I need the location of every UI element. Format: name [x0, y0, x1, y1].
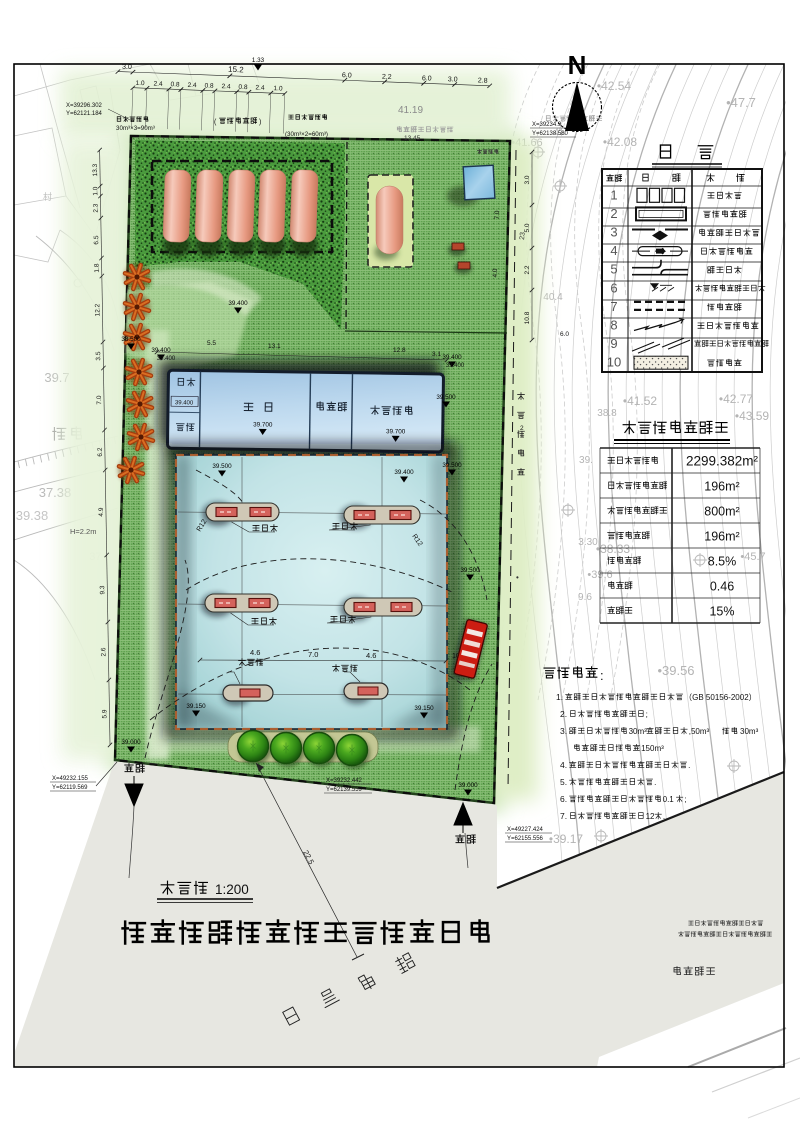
svg-text:9: 9 — [610, 336, 617, 351]
svg-text:6.0: 6.0 — [560, 331, 569, 338]
svg-text:2.2: 2.2 — [524, 265, 531, 274]
svg-text:5.: 5. — [560, 777, 567, 787]
svg-text:2.: 2. — [560, 709, 567, 719]
svg-text:7: 7 — [610, 299, 617, 314]
svg-text:38.8: 38.8 — [597, 408, 617, 419]
svg-text:3.: 3. — [560, 726, 567, 736]
svg-text:39.150: 39.150 — [414, 705, 434, 712]
svg-text:39.500: 39.500 — [442, 462, 462, 469]
svg-text:13.45: 13.45 — [404, 135, 421, 142]
svg-text:39.500: 39.500 — [460, 567, 480, 574]
svg-text:X=39234.9: X=39234.9 — [532, 122, 562, 128]
svg-text:3.0: 3.0 — [524, 175, 531, 184]
svg-text:.: . — [654, 778, 656, 787]
svg-text:•45.7: •45.7 — [740, 551, 765, 563]
svg-text:4.6: 4.6 — [250, 648, 260, 657]
svg-text:1.33: 1.33 — [252, 57, 265, 64]
svg-text:1.8: 1.8 — [94, 263, 101, 273]
svg-text:•41.52: •41.52 — [623, 394, 658, 408]
svg-text:N: N — [568, 50, 587, 80]
svg-text:2.8: 2.8 — [478, 77, 488, 84]
svg-text:0.8: 0.8 — [170, 81, 180, 88]
svg-text:3.1: 3.1 — [432, 351, 441, 358]
svg-text:41.19: 41.19 — [398, 105, 423, 116]
svg-text:39.400: 39.400 — [175, 400, 194, 406]
svg-text:2.4: 2.4 — [187, 82, 197, 89]
svg-text:7.0: 7.0 — [308, 650, 318, 659]
svg-text:30m³: 30m³ — [629, 727, 648, 736]
svg-text:2.4: 2.4 — [221, 83, 231, 90]
svg-text:30m³: 30m³ — [740, 727, 759, 736]
svg-text:5.9: 5.9 — [101, 709, 108, 719]
svg-text:•42.54: •42.54 — [597, 79, 632, 93]
svg-text:•39.56: •39.56 — [657, 663, 694, 678]
svg-text:10.8: 10.8 — [524, 311, 531, 324]
svg-text:X=49227.424: X=49227.424 — [507, 827, 544, 833]
svg-text:X=49232.155: X=49232.155 — [52, 776, 89, 782]
svg-text:196m²: 196m² — [704, 480, 739, 494]
svg-text:•39.17: •39.17 — [549, 832, 584, 846]
svg-text:39.38: 39.38 — [16, 508, 49, 523]
svg-text:Y=62139.559: Y=62139.559 — [326, 787, 363, 793]
svg-text:3: 3 — [610, 225, 617, 240]
svg-text:30m³×3=90m³: 30m³×3=90m³ — [116, 125, 155, 132]
svg-text:12: 12 — [646, 812, 655, 821]
svg-text:•: • — [516, 573, 519, 582]
svg-text:39.700: 39.700 — [253, 421, 273, 428]
svg-text:•43.59: •43.59 — [735, 409, 770, 423]
svg-text::: : — [600, 668, 604, 683]
svg-text:(30m³×2=60m³): (30m³×2=60m³) — [285, 131, 328, 138]
svg-text:3.5: 3.5 — [95, 351, 102, 361]
svg-text:4.: 4. — [560, 760, 567, 770]
svg-text:（GB 50156-2002）: （GB 50156-2002） — [684, 693, 757, 702]
svg-text:3.0: 3.0 — [122, 64, 132, 71]
svg-text:13.3: 13.3 — [92, 163, 99, 176]
svg-text:13.1: 13.1 — [268, 343, 281, 350]
svg-text:6.: 6. — [560, 794, 567, 804]
svg-text:•42.08: •42.08 — [603, 135, 638, 149]
svg-text:Y=62121.184: Y=62121.184 — [66, 111, 103, 117]
svg-text:10: 10 — [607, 355, 621, 370]
svg-text:39.000: 39.000 — [121, 739, 141, 746]
svg-text:0.8: 0.8 — [238, 84, 248, 91]
svg-text:Y=62119.569: Y=62119.569 — [52, 785, 88, 791]
svg-text:1.: 1. — [556, 692, 563, 702]
svg-text:6: 6 — [610, 280, 617, 295]
svg-text:1.0: 1.0 — [135, 80, 145, 87]
svg-text:5: 5 — [610, 262, 617, 277]
svg-text:4: 4 — [610, 243, 617, 258]
svg-text:村: 村 — [43, 191, 52, 202]
svg-text:4.6: 4.6 — [366, 651, 376, 660]
svg-text:5.0: 5.0 — [524, 223, 531, 232]
svg-text:;: ; — [684, 795, 686, 804]
svg-text:9.6: 9.6 — [578, 592, 592, 603]
svg-text:Y=62138.580: Y=62138.580 — [532, 131, 569, 137]
svg-text:8.5%: 8.5% — [708, 555, 737, 569]
svg-text:23: 23 — [519, 232, 527, 240]
svg-text:2.4: 2.4 — [153, 81, 163, 88]
svg-text:2: 2 — [610, 206, 617, 221]
svg-text:1.0: 1.0 — [273, 85, 283, 92]
svg-text:4.9: 4.9 — [98, 507, 105, 517]
svg-text:9.3: 9.3 — [99, 585, 106, 595]
svg-text:): ) — [259, 119, 261, 126]
svg-text:6.5: 6.5 — [93, 235, 100, 245]
svg-text:2.4: 2.4 — [255, 84, 265, 91]
svg-text:0.8: 0.8 — [204, 82, 214, 89]
svg-text:12.8: 12.8 — [393, 347, 406, 354]
svg-text:•42.77: •42.77 — [719, 392, 754, 406]
svg-text:8: 8 — [610, 318, 617, 333]
svg-text:0.46: 0.46 — [710, 580, 734, 594]
svg-text:1: 1 — [610, 187, 617, 202]
svg-text:H=2.2m: H=2.2m — [70, 527, 96, 536]
svg-text:•47.7: •47.7 — [726, 95, 756, 110]
svg-text:;: ; — [646, 710, 648, 719]
svg-text:39.400: 39.400 — [151, 347, 171, 354]
svg-text:38.500: 38.500 — [121, 336, 141, 343]
svg-text:3.30: 3.30 — [578, 537, 598, 548]
svg-text:7.0: 7.0 — [494, 210, 501, 219]
svg-text:39.500: 39.500 — [212, 463, 232, 470]
svg-text:196m²: 196m² — [704, 530, 739, 544]
svg-text:7.: 7. — [560, 811, 567, 821]
svg-text:39.: 39. — [579, 455, 593, 466]
svg-text:150m³: 150m³ — [641, 744, 664, 753]
svg-text:40.4: 40.4 — [543, 292, 563, 303]
svg-text:6.0: 6.0 — [422, 75, 432, 82]
svg-text:X=39232.442: X=39232.442 — [326, 778, 363, 784]
svg-text:39.400: 39.400 — [446, 363, 465, 369]
svg-text:,50m³: ,50m³ — [689, 727, 710, 736]
svg-text:Y=62155.556: Y=62155.556 — [507, 836, 544, 842]
svg-text:.: . — [663, 812, 665, 821]
svg-text:1:200: 1:200 — [215, 882, 249, 897]
svg-text:12.2: 12.2 — [94, 303, 101, 316]
svg-text:2.3: 2.3 — [93, 203, 100, 213]
svg-text:1.0: 1.0 — [92, 186, 99, 196]
svg-text:.: . — [688, 761, 690, 770]
svg-text:800m²: 800m² — [704, 505, 739, 519]
svg-text:4.0: 4.0 — [492, 268, 499, 277]
svg-text:0.1: 0.1 — [663, 795, 675, 804]
svg-text:15.2: 15.2 — [228, 65, 244, 75]
svg-text:39.700: 39.700 — [386, 428, 406, 435]
svg-text:39.500: 39.500 — [436, 394, 456, 401]
svg-text:39.150: 39.150 — [186, 703, 206, 710]
svg-text:7.0: 7.0 — [96, 395, 103, 405]
svg-text:39.000: 39.000 — [458, 782, 478, 789]
svg-text:6.2: 6.2 — [97, 447, 104, 457]
svg-text:39.400: 39.400 — [157, 356, 176, 362]
svg-text:5.5: 5.5 — [207, 340, 216, 347]
svg-text:•38.33: •38.33 — [596, 542, 631, 556]
svg-text:X=39296.302: X=39296.302 — [66, 103, 103, 109]
svg-text:2299.382m²: 2299.382m² — [686, 454, 759, 469]
svg-text:15%: 15% — [709, 605, 734, 619]
svg-text:39.400: 39.400 — [228, 300, 248, 307]
svg-text:2.6: 2.6 — [100, 647, 107, 657]
svg-text:39.400: 39.400 — [394, 469, 414, 476]
